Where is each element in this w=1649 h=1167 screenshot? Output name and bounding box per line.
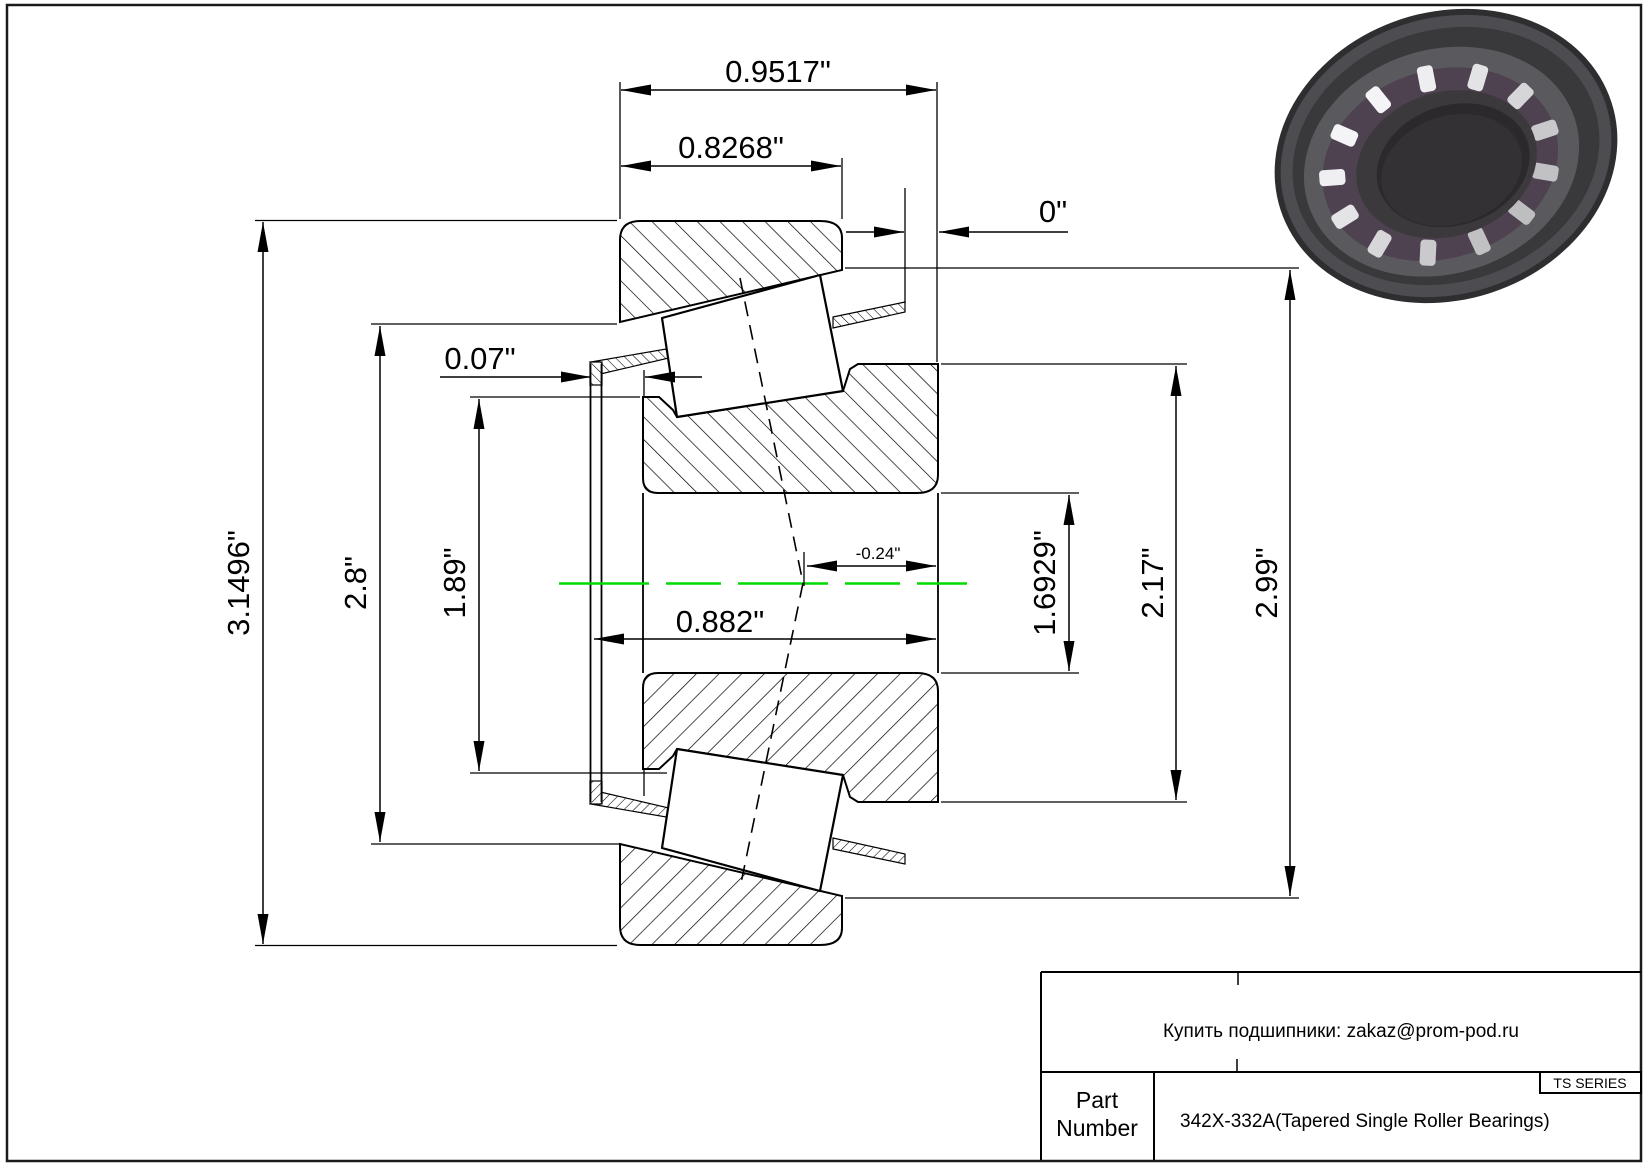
dim-cup-width: 0.8268" [678, 130, 784, 165]
drawing-sheet: 0.9517" 0.8268" 0" 0.07" 0.882" -0.24" 3… [0, 0, 1649, 1167]
cage-hook [590, 362, 602, 385]
bearing-3d-render [1236, 0, 1649, 347]
bearing-section-lower-half [590, 673, 938, 945]
dim-effective-center: -0.24" [856, 544, 901, 563]
dim-cup-od: 2.99" [1249, 547, 1284, 618]
dim-housing-od: 3.1496" [221, 530, 256, 636]
dim-cage-lip: 0.07" [444, 341, 515, 376]
supplier-note: Купить подшипники: zakaz@prom-pod.ru [1163, 1021, 1519, 1042]
part-number-value: 342X-332A(Tapered Single Roller Bearings… [1180, 1111, 1550, 1132]
bearing-3d-roller [1319, 169, 1346, 187]
dim-outer-shoulder: 2.8" [338, 556, 373, 610]
part-number-label-line1: Part [1076, 1087, 1119, 1113]
drawing-canvas: 0.9517" 0.8268" 0" 0.07" 0.882" -0.24" 3… [0, 0, 1649, 1167]
title-block: Купить подшипники: zakaz@prom-pod.ru TS … [1041, 972, 1641, 1160]
dim-stickout: 0" [1039, 194, 1067, 229]
cage-strip-left [591, 349, 669, 375]
dim-cone-width: 0.882" [676, 604, 765, 639]
series-label: TS SERIES [1553, 1075, 1626, 1091]
bearing-3d-roller [1419, 239, 1436, 266]
dim-inner-shoulder: 1.89" [437, 547, 472, 618]
dim-bore: 1.6929" [1027, 530, 1062, 636]
dim-overall-width: 0.9517" [725, 54, 831, 89]
cage-strip-right [833, 302, 905, 328]
dim-cone-back-od: 2.17" [1135, 547, 1170, 618]
part-number-label-line2: Number [1056, 1115, 1138, 1141]
bearing-section-upper-half [590, 221, 938, 493]
